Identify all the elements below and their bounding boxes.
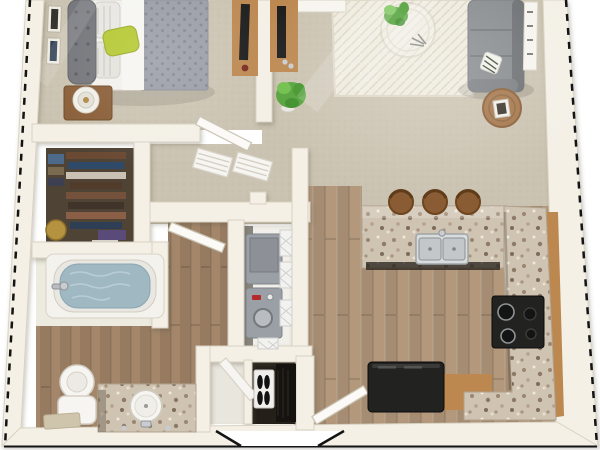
side-table xyxy=(483,89,521,127)
wall-vanity-closet-divider xyxy=(196,346,210,432)
wall-console xyxy=(523,2,537,70)
storage-basket xyxy=(46,220,66,240)
tv-console-bedroom xyxy=(232,0,258,76)
tub-water xyxy=(60,264,150,308)
wall-closets-north xyxy=(200,346,312,362)
fridge-handle xyxy=(404,366,422,369)
dryer-door xyxy=(254,309,272,327)
sink-drain xyxy=(144,404,148,408)
floor-plan-canvas xyxy=(0,0,600,450)
hanging-clothes xyxy=(70,182,122,189)
picture-frame xyxy=(493,99,510,118)
shoe-tray xyxy=(254,370,274,408)
vanity-faucet xyxy=(141,421,151,427)
hanging-clothes xyxy=(66,172,126,179)
tv-living xyxy=(277,6,286,58)
wall-hall-east xyxy=(228,220,244,360)
wall-closets-east xyxy=(296,356,314,430)
media-credenza xyxy=(296,0,346,12)
hanging-clothes xyxy=(66,212,126,219)
hanging-clothes xyxy=(66,152,126,159)
wall-closet-east xyxy=(134,142,150,246)
console-knob xyxy=(282,59,287,64)
fridge-handle xyxy=(378,366,396,369)
sectional-sofa xyxy=(458,0,534,100)
closet-shelf-item xyxy=(48,154,64,164)
refrigerator xyxy=(368,362,444,412)
breakfast-bar xyxy=(362,206,506,270)
wall-vestibule-south xyxy=(136,202,310,222)
burner xyxy=(498,304,514,320)
coffee-table xyxy=(381,2,435,57)
closet-shelf-item xyxy=(98,230,126,240)
sink-faucet xyxy=(439,230,445,236)
sofa-back xyxy=(512,0,524,92)
burner xyxy=(526,329,536,339)
tv-console-living xyxy=(270,0,298,72)
closet-shelf-item xyxy=(48,167,64,175)
hanging-clothes xyxy=(68,202,124,209)
hanging-clothes xyxy=(68,162,124,169)
double-sink xyxy=(416,230,468,264)
wall-bedroom-south xyxy=(32,124,200,142)
vanity-shadow xyxy=(98,390,106,432)
hanging-coats xyxy=(276,364,296,422)
toilet-seat xyxy=(67,372,87,392)
table-lamp-finial xyxy=(83,97,89,103)
range-stove xyxy=(492,296,544,348)
floor-plan-render xyxy=(0,0,600,450)
vanity xyxy=(98,384,196,432)
hanging-clothes xyxy=(66,192,126,199)
headboard xyxy=(68,0,96,84)
bathtub xyxy=(46,254,164,318)
console-knob xyxy=(288,63,293,68)
closet-shelf-item xyxy=(48,178,64,186)
dryer-knob xyxy=(267,294,273,300)
wall-bedroom-living-divider xyxy=(256,0,272,122)
wall-doorframe-bump xyxy=(250,192,266,204)
bath-mat xyxy=(44,413,81,429)
dryer-indicator xyxy=(252,295,261,300)
wall-laundry-east xyxy=(292,148,308,360)
console-decor xyxy=(242,65,249,72)
hanging-clothes xyxy=(70,222,122,229)
vanity-knob xyxy=(166,426,171,431)
bar-stools xyxy=(389,190,480,214)
vanity-knob xyxy=(122,426,127,431)
burner xyxy=(524,308,536,320)
burner xyxy=(501,329,515,343)
bed-duvet xyxy=(140,0,208,90)
